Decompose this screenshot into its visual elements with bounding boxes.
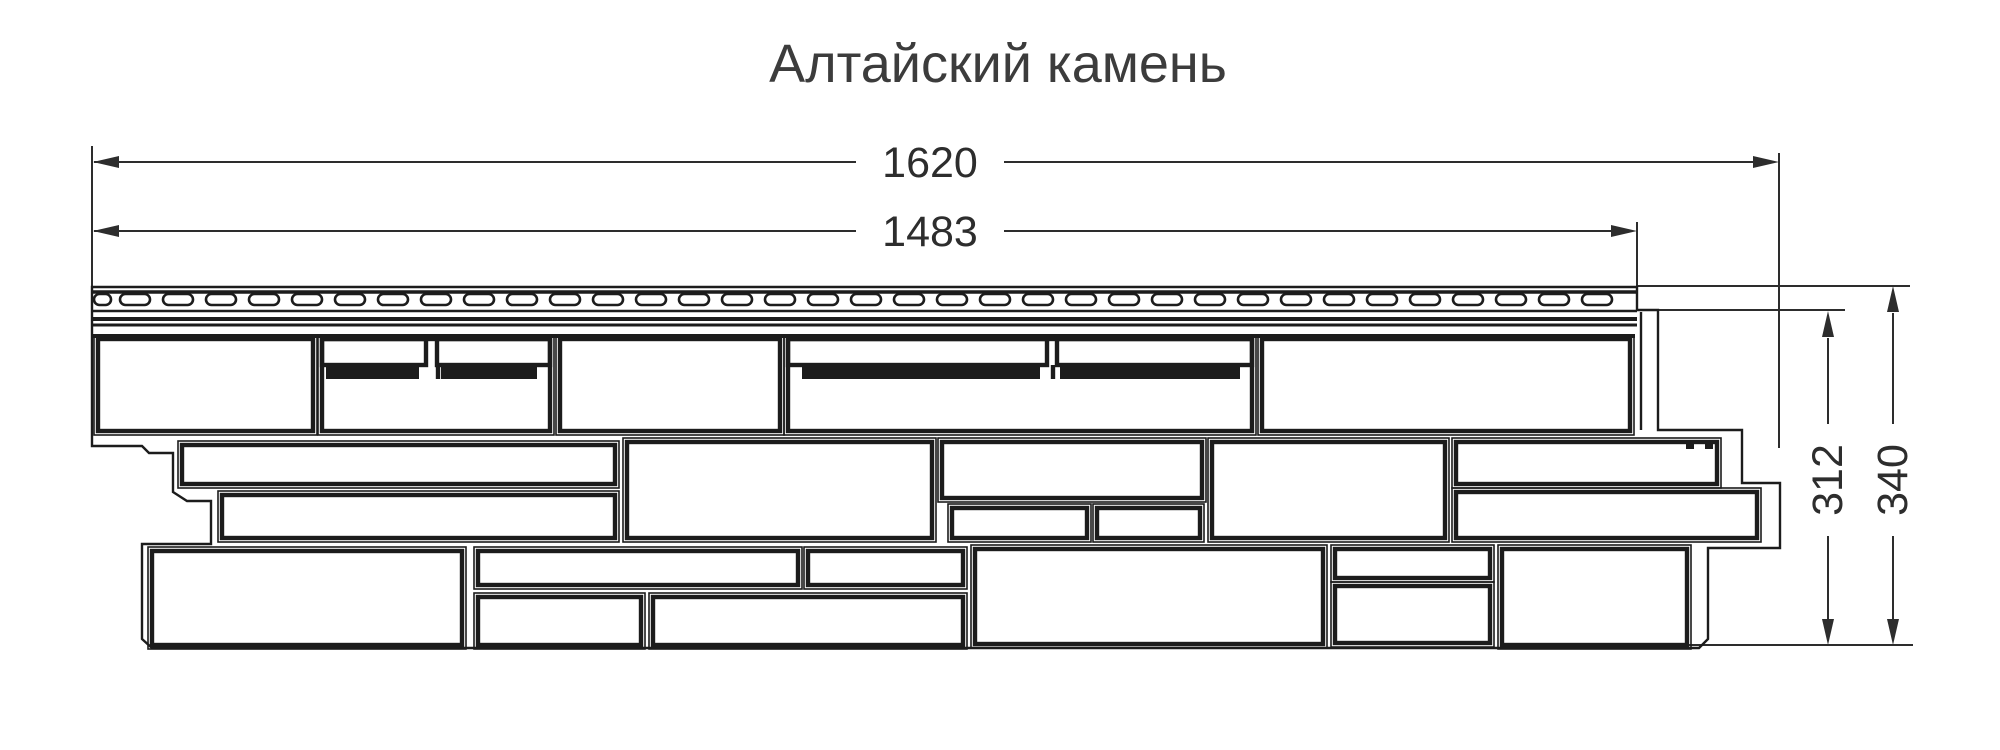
stone-outline [556,335,784,435]
stone-outline [148,547,466,649]
stone [98,339,313,431]
nail-slot [206,294,236,305]
arrowhead-down-icon [1822,619,1834,645]
stone [942,442,1202,498]
stone-outline [649,593,967,649]
stone-outline [1208,438,1449,542]
nail-slot [464,294,494,305]
stone-outline [474,593,645,649]
stone [1502,549,1687,645]
stone [1456,492,1757,538]
nail-slot [1539,294,1569,305]
stone [788,339,1252,431]
interlock-notch [1705,442,1713,449]
nail-slot [1023,294,1053,305]
relief-shadow-band [1060,364,1240,379]
nail-slot [120,294,150,305]
dimension-label-nominal-length: 1483 [882,208,978,256]
stone [975,549,1323,644]
stone-outline [1258,335,1634,435]
nail-slot [292,294,322,305]
arrowhead-left-icon [93,156,119,168]
stone [1057,339,1252,365]
stone-outline [784,335,1256,435]
stone [478,551,798,585]
siding-panel-technical-drawing: Алтайский камень 1620 1483 312 340 [0,0,2000,750]
arrowhead-up-icon [1822,311,1834,337]
nail-slot [1324,294,1354,305]
nail-slot [894,294,924,305]
stone-outline [474,547,802,589]
drawing-sheet: Алтайский камень 1620 1483 312 340 [0,0,2000,750]
stone [952,508,1087,538]
nail-slot [507,294,537,305]
dimension-label-total-height: 340 [1869,444,1917,516]
nail-slot [421,294,451,305]
relief-shadow-band [802,364,1040,379]
nail-slot [249,294,279,305]
nail-slot [851,294,881,305]
nail-slot [808,294,838,305]
stone [152,551,462,645]
stone [1212,442,1445,538]
nail-slot [550,294,580,305]
stone [560,339,780,431]
stone-outline [1331,582,1494,647]
arrowhead-down-icon [1887,619,1899,645]
arrowhead-right-icon [1753,156,1779,168]
stone-outline [938,438,1206,502]
stone [478,597,641,645]
nail-slot [1281,294,1311,305]
nail-slot [1195,294,1225,305]
nail-slot [679,294,709,305]
stone [1262,339,1630,431]
stone [1335,549,1490,578]
page-title: Алтайский камень [769,34,1227,94]
stone [1097,508,1200,538]
stone-outline [804,547,967,589]
nail-slot [378,294,408,305]
stone-outline [971,545,1327,648]
stone-outline [178,441,619,488]
nail-slot [765,294,795,305]
nail-slot [1582,294,1612,305]
panel [92,287,1780,649]
nail-slot [937,294,967,305]
nail-slot [593,294,623,305]
nail-slot [636,294,666,305]
nail-slot [1496,294,1526,305]
stone [1456,442,1717,484]
stone-outline [1452,488,1761,542]
stone [808,551,963,585]
stone [627,442,932,538]
relief-shadow-band [326,364,419,379]
stone [437,339,550,365]
dimension-label-total-length: 1620 [882,139,978,187]
stone-outline [94,335,317,435]
arrowhead-up-icon [1887,286,1899,312]
stone-outline [623,438,936,542]
dimension-total-height: 340 [1637,286,1917,645]
nail-slot [1410,294,1440,305]
nail-slot [1367,294,1397,305]
nail-slot [163,294,193,305]
nail-slot [980,294,1010,305]
arrowhead-left-icon [93,225,119,237]
stone [1335,586,1490,643]
dimension-label-exposure-height: 312 [1804,444,1852,516]
nail-slot [335,294,365,305]
stone-pattern [94,335,1761,649]
stone-outline [1452,438,1721,488]
stone-outline [1498,545,1691,649]
interlock-notch [1686,442,1694,449]
nail-slot [94,294,111,305]
nail-slot [1152,294,1182,305]
stone [182,445,615,484]
nail-slot [1453,294,1483,305]
stone [653,597,963,645]
stone [222,495,615,538]
stone [788,339,1047,365]
nail-slot [722,294,752,305]
nail-slot [1238,294,1268,305]
nail-strip [92,292,1641,430]
nail-slot [1109,294,1139,305]
nail-slot [1066,294,1096,305]
relief-shadow-band [441,364,537,379]
dimension-nominal-length: 1483 [93,208,1637,286]
arrowhead-right-icon [1611,225,1637,237]
stone-outline [218,491,619,542]
stone [322,339,426,365]
